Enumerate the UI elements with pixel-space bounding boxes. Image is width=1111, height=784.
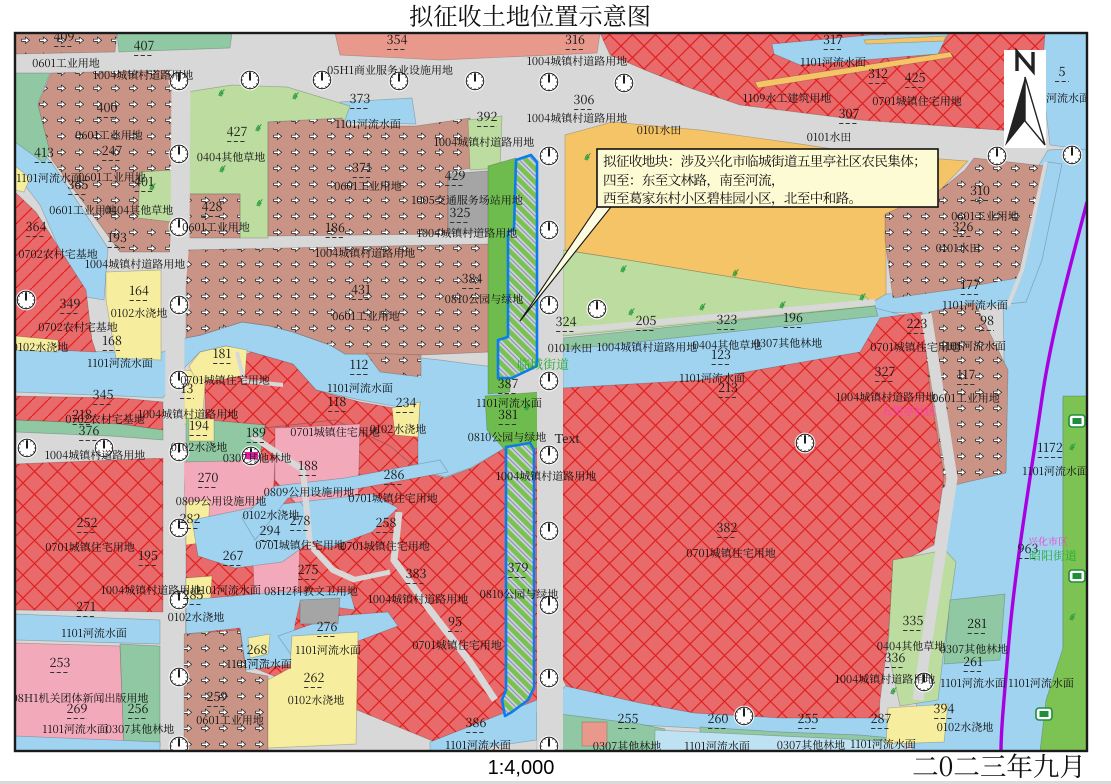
svg-text:Text: Text [555,432,580,447]
svg-text:1:4,000: 1:4,000 [488,757,555,779]
